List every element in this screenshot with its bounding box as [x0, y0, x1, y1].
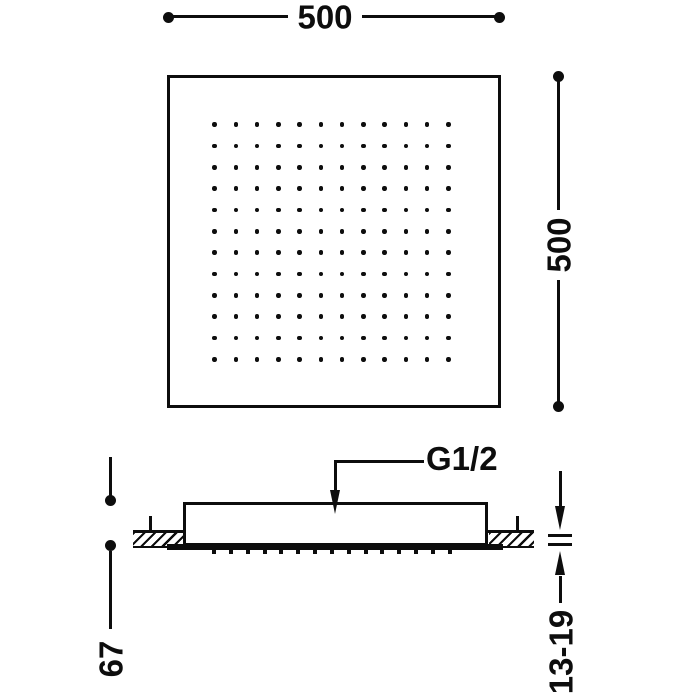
nozzle-dot	[234, 229, 239, 234]
nozzle-cell	[417, 135, 438, 156]
nozzle-dot	[361, 336, 366, 341]
nozzle-dot	[404, 144, 409, 149]
nozzle-dot	[276, 272, 281, 277]
nozzle-dot	[319, 186, 324, 191]
nozzle-dot	[382, 357, 387, 362]
nozzle-dot	[446, 250, 451, 255]
nozzle-cell	[289, 263, 310, 284]
nozzle-dot	[234, 186, 239, 191]
nozzle-dot	[382, 122, 387, 127]
nozzle-cell	[225, 306, 246, 327]
nozzle-cell	[417, 221, 438, 242]
nozzle-cell	[417, 199, 438, 220]
nozzle-cell	[310, 263, 331, 284]
nozzle-dot	[234, 293, 239, 298]
nozzle-cell	[374, 242, 395, 263]
nozzle-dot	[404, 314, 409, 319]
nozzle-cell	[353, 114, 374, 135]
nozzle-dot	[297, 272, 302, 277]
nozzle-dot	[446, 314, 451, 319]
nozzle-dot	[234, 314, 239, 319]
nozzle-dot	[212, 144, 217, 149]
nozzle-cell	[332, 178, 353, 199]
nozzle-dot	[234, 272, 239, 277]
nozzle-cell	[289, 178, 310, 199]
nozzle-dot	[276, 314, 281, 319]
nozzle-dot	[276, 122, 281, 127]
nozzle-dot	[234, 357, 239, 362]
nozzle-cell	[204, 221, 225, 242]
nozzle-cell	[310, 157, 331, 178]
nozzle-dot	[382, 186, 387, 191]
nozzle-cell	[289, 242, 310, 263]
nozzle-dot	[255, 293, 260, 298]
nozzle-dot	[297, 357, 302, 362]
nozzle-dot	[404, 165, 409, 170]
technical-drawing: 500 500 G1/2	[0, 0, 700, 700]
nozzle-cell	[438, 178, 459, 199]
nozzle-dot	[255, 208, 260, 213]
nozzle-cell	[438, 285, 459, 306]
nozzle-dot	[425, 144, 430, 149]
dim-line	[557, 81, 560, 210]
nozzle-dot	[255, 314, 260, 319]
nozzle-dot	[212, 272, 217, 277]
nozzle-cell	[374, 135, 395, 156]
nozzle-dot	[361, 293, 366, 298]
nozzle-cell	[374, 114, 395, 135]
side-nozzle-dash	[397, 550, 401, 554]
nozzle-cell	[225, 178, 246, 199]
nozzle-dot	[446, 229, 451, 234]
nozzle-dot	[404, 293, 409, 298]
nozzle-cell	[268, 199, 289, 220]
nozzle-dot	[382, 272, 387, 277]
nozzle-cell	[268, 285, 289, 306]
nozzle-cell	[204, 263, 225, 284]
nozzle-cell	[332, 199, 353, 220]
nozzle-cell	[204, 349, 225, 370]
nozzle-cell	[268, 242, 289, 263]
side-nozzle-dash	[380, 550, 384, 554]
nozzle-cell	[438, 135, 459, 156]
nozzle-dot	[340, 272, 345, 277]
nozzle-cell	[268, 306, 289, 327]
nozzle-cell	[204, 135, 225, 156]
dim-arrow-up-icon	[555, 551, 565, 575]
nozzle-dot	[361, 165, 366, 170]
nozzle-dot	[361, 122, 366, 127]
side-nozzle-dash	[229, 550, 233, 554]
nozzle-dot	[404, 272, 409, 277]
nozzle-cell	[310, 327, 331, 348]
nozzle-cell	[438, 327, 459, 348]
dim-arrow-down-icon	[555, 506, 565, 530]
nozzle-dot	[212, 165, 217, 170]
side-nozzle-dash	[347, 550, 351, 554]
dim-line	[557, 280, 560, 402]
nozzle-cell	[204, 242, 225, 263]
nozzle-dot	[276, 208, 281, 213]
nozzle-cell	[353, 157, 374, 178]
nozzle-dot	[297, 144, 302, 149]
nozzle-cell	[438, 263, 459, 284]
nozzle-dot	[212, 336, 217, 341]
nozzle-dot	[446, 186, 451, 191]
nozzle-dot	[297, 186, 302, 191]
nozzle-cell	[247, 135, 268, 156]
nozzle-dot	[340, 186, 345, 191]
nozzle-cell	[332, 327, 353, 348]
nozzle-dot	[425, 336, 430, 341]
nozzle-dot	[382, 336, 387, 341]
dim-line	[109, 457, 112, 496]
nozzle-dot	[319, 229, 324, 234]
nozzle-cell	[417, 263, 438, 284]
nozzle-dot	[276, 336, 281, 341]
side-nozzle-dash	[414, 550, 418, 554]
nozzle-cell	[268, 178, 289, 199]
side-nozzle-dash	[246, 550, 250, 554]
nozzle-cell	[332, 306, 353, 327]
nozzle-cell	[374, 263, 395, 284]
nozzle-cell	[310, 285, 331, 306]
nozzle-dot	[361, 357, 366, 362]
side-nozzle-row	[212, 550, 452, 554]
nozzle-dot	[319, 122, 324, 127]
nozzle-cell	[247, 349, 268, 370]
nozzle-cell	[268, 114, 289, 135]
dim-line	[109, 551, 112, 629]
leader-arrow-down-icon	[330, 490, 340, 514]
nozzle-cell	[353, 349, 374, 370]
nozzle-dot	[425, 250, 430, 255]
nozzle-dot	[382, 314, 387, 319]
nozzle-dot	[361, 314, 366, 319]
nozzle-dot	[276, 250, 281, 255]
nozzle-cell	[247, 285, 268, 306]
nozzle-dot	[425, 293, 430, 298]
nozzle-cell	[395, 285, 416, 306]
nozzle-cell	[289, 327, 310, 348]
nozzle-dot	[255, 122, 260, 127]
nozzle-cell	[268, 327, 289, 348]
side-nozzle-dash	[279, 550, 283, 554]
nozzle-dot	[212, 314, 217, 319]
nozzle-dot	[319, 144, 324, 149]
nozzle-dot	[404, 122, 409, 127]
nozzle-dot	[404, 229, 409, 234]
nozzle-dot	[425, 165, 430, 170]
nozzle-cell	[225, 285, 246, 306]
nozzle-cell	[289, 199, 310, 220]
nozzle-cell	[395, 242, 416, 263]
nozzle-cell	[247, 242, 268, 263]
nozzle-dot	[404, 186, 409, 191]
dim-line	[172, 15, 288, 18]
nozzle-cell	[374, 306, 395, 327]
nozzle-cell	[374, 157, 395, 178]
nozzle-dot	[340, 357, 345, 362]
nozzle-cell	[247, 199, 268, 220]
nozzle-cell	[353, 221, 374, 242]
nozzle-cell	[395, 306, 416, 327]
nozzle-cell	[289, 285, 310, 306]
nozzle-cell	[225, 263, 246, 284]
nozzle-dot	[319, 357, 324, 362]
nozzle-dot	[361, 272, 366, 277]
nozzle-cell	[395, 178, 416, 199]
nozzle-cell	[438, 242, 459, 263]
nozzle-cell	[374, 178, 395, 199]
nozzle-cell	[225, 327, 246, 348]
nozzle-dot	[276, 144, 281, 149]
nozzle-cell	[225, 135, 246, 156]
nozzle-cell	[332, 242, 353, 263]
dim-line	[559, 471, 562, 508]
nozzle-cell	[353, 178, 374, 199]
nozzle-dot	[297, 314, 302, 319]
nozzle-cell	[247, 178, 268, 199]
nozzle-cell	[395, 157, 416, 178]
nozzle-cell	[204, 178, 225, 199]
side-nozzle-dash	[330, 550, 334, 554]
nozzle-cell	[289, 221, 310, 242]
nozzle-cell	[374, 349, 395, 370]
nozzle-cell	[289, 114, 310, 135]
nozzle-cell	[374, 285, 395, 306]
nozzle-dot	[340, 229, 345, 234]
nozzle-cell	[332, 221, 353, 242]
nozzle-cell	[332, 157, 353, 178]
nozzle-cell	[332, 285, 353, 306]
nozzle-cell	[204, 199, 225, 220]
nozzle-dot	[361, 250, 366, 255]
nozzle-dot	[446, 357, 451, 362]
nozzle-cell	[310, 306, 331, 327]
nozzle-dot	[340, 122, 345, 127]
nozzle-dot	[297, 250, 302, 255]
nozzle-cell	[438, 306, 459, 327]
ceiling-thickness-dim-label: 13-19	[545, 610, 578, 694]
nozzle-dot	[382, 250, 387, 255]
nozzle-dot	[319, 165, 324, 170]
nozzle-dot	[340, 165, 345, 170]
nozzle-cell	[417, 157, 438, 178]
dim-endpoint-dot	[553, 401, 564, 412]
nozzle-dot	[340, 293, 345, 298]
nozzle-dot	[212, 122, 217, 127]
nozzle-dot	[234, 165, 239, 170]
side-nozzle-dash	[364, 550, 368, 554]
nozzle-dot	[340, 250, 345, 255]
nozzle-dot	[255, 357, 260, 362]
side-nozzle-dash	[212, 550, 216, 554]
nozzle-cell	[395, 221, 416, 242]
leader-line-vertical	[334, 460, 337, 494]
nozzle-cell	[332, 263, 353, 284]
ceiling-tick-right	[516, 516, 519, 531]
nozzle-cell	[332, 349, 353, 370]
nozzle-dot	[276, 293, 281, 298]
nozzle-cell	[247, 221, 268, 242]
nozzle-cell	[268, 263, 289, 284]
nozzle-cell	[395, 114, 416, 135]
connection-label: G1/2	[426, 442, 498, 475]
ceiling-tick-left	[149, 516, 152, 531]
nozzle-cell	[268, 349, 289, 370]
nozzle-cell	[225, 349, 246, 370]
nozzle-cell	[353, 285, 374, 306]
leader-line-horizontal	[336, 460, 424, 463]
nozzle-cell	[225, 221, 246, 242]
nozzle-cell	[310, 221, 331, 242]
nozzle-cell	[374, 327, 395, 348]
nozzle-cell	[438, 199, 459, 220]
nozzle-cell	[374, 199, 395, 220]
nozzle-dot	[319, 272, 324, 277]
nozzle-dot	[361, 229, 366, 234]
nozzle-cell	[417, 178, 438, 199]
nozzle-dot	[319, 336, 324, 341]
nozzle-cell	[310, 349, 331, 370]
nozzle-cell	[225, 242, 246, 263]
nozzle-dot	[446, 336, 451, 341]
nozzle-dot	[446, 293, 451, 298]
nozzle-dot	[382, 229, 387, 234]
nozzle-cell	[289, 157, 310, 178]
nozzle-dot	[276, 186, 281, 191]
nozzle-cell	[438, 157, 459, 178]
nozzle-dot	[340, 208, 345, 213]
nozzle-cell	[289, 306, 310, 327]
nozzle-cell	[395, 263, 416, 284]
nozzle-dot	[255, 165, 260, 170]
body-height-dim-label: 67	[95, 641, 128, 678]
nozzle-cell	[374, 221, 395, 242]
nozzle-cell	[204, 327, 225, 348]
nozzle-dot	[212, 293, 217, 298]
nozzle-dot	[276, 229, 281, 234]
nozzle-cell	[310, 242, 331, 263]
nozzle-dot	[212, 186, 217, 191]
nozzle-dot	[319, 293, 324, 298]
nozzle-cell	[353, 263, 374, 284]
nozzle-cell	[204, 306, 225, 327]
nozzle-dot	[382, 208, 387, 213]
nozzle-cell	[247, 263, 268, 284]
nozzle-dot	[340, 336, 345, 341]
nozzle-cell	[247, 306, 268, 327]
nozzle-dot	[404, 250, 409, 255]
nozzle-cell	[417, 306, 438, 327]
nozzle-cell	[417, 327, 438, 348]
nozzle-cell	[395, 135, 416, 156]
nozzle-cell	[395, 199, 416, 220]
nozzle-dot	[404, 336, 409, 341]
nozzle-dot	[425, 229, 430, 234]
nozzle-cell	[225, 114, 246, 135]
nozzle-dot	[212, 208, 217, 213]
nozzle-cell	[417, 349, 438, 370]
nozzle-dot	[446, 208, 451, 213]
nozzle-cell	[225, 157, 246, 178]
nozzle-cell	[310, 199, 331, 220]
nozzle-cell	[204, 285, 225, 306]
nozzle-cell	[289, 135, 310, 156]
nozzle-cell	[353, 135, 374, 156]
nozzle-dot	[425, 122, 430, 127]
nozzle-dot	[255, 250, 260, 255]
nozzle-dot	[297, 336, 302, 341]
nozzle-dot	[382, 144, 387, 149]
nozzle-dot	[361, 186, 366, 191]
nozzle-cell	[268, 221, 289, 242]
nozzle-cell	[438, 114, 459, 135]
nozzle-dot	[297, 208, 302, 213]
nozzle-cell	[353, 327, 374, 348]
extent-tick-bottom	[548, 543, 572, 546]
nozzle-dot	[425, 208, 430, 213]
nozzle-cell	[268, 135, 289, 156]
dim-endpoint-dot	[494, 12, 505, 23]
nozzle-dot	[425, 357, 430, 362]
nozzle-cell	[332, 114, 353, 135]
nozzle-cell	[204, 157, 225, 178]
nozzle-dot	[361, 208, 366, 213]
nozzle-cell	[247, 157, 268, 178]
nozzle-cell	[247, 114, 268, 135]
nozzle-cell	[332, 135, 353, 156]
nozzle-dot	[234, 208, 239, 213]
nozzle-dot	[255, 229, 260, 234]
width-dim-label: 500	[297, 1, 352, 34]
nozzle-dot	[255, 272, 260, 277]
nozzle-dot	[382, 165, 387, 170]
nozzle-cell	[417, 242, 438, 263]
nozzle-dot	[361, 144, 366, 149]
dim-line	[559, 576, 562, 603]
nozzle-dot	[297, 122, 302, 127]
nozzle-dot	[255, 144, 260, 149]
dim-endpoint-dot	[105, 540, 116, 551]
nozzle-dot	[319, 314, 324, 319]
nozzle-dot	[404, 357, 409, 362]
nozzle-dot	[446, 122, 451, 127]
nozzle-cell	[268, 157, 289, 178]
nozzle-dot	[276, 357, 281, 362]
nozzle-dot	[404, 208, 409, 213]
nozzle-cell	[417, 114, 438, 135]
nozzle-dot	[212, 250, 217, 255]
nozzle-dot	[212, 357, 217, 362]
nozzle-cell	[289, 349, 310, 370]
nozzle-cell	[247, 327, 268, 348]
nozzle-dot	[212, 229, 217, 234]
nozzle-dot	[446, 165, 451, 170]
nozzle-dot	[234, 144, 239, 149]
nozzle-cell	[310, 178, 331, 199]
nozzle-cell	[353, 199, 374, 220]
depth-dim-label: 500	[543, 217, 576, 272]
side-nozzle-dash	[313, 550, 317, 554]
side-nozzle-dash	[296, 550, 300, 554]
nozzle-dot	[234, 336, 239, 341]
nozzle-dot	[234, 122, 239, 127]
nozzle-dot	[297, 229, 302, 234]
nozzle-cell	[417, 285, 438, 306]
nozzle-dot	[446, 272, 451, 277]
